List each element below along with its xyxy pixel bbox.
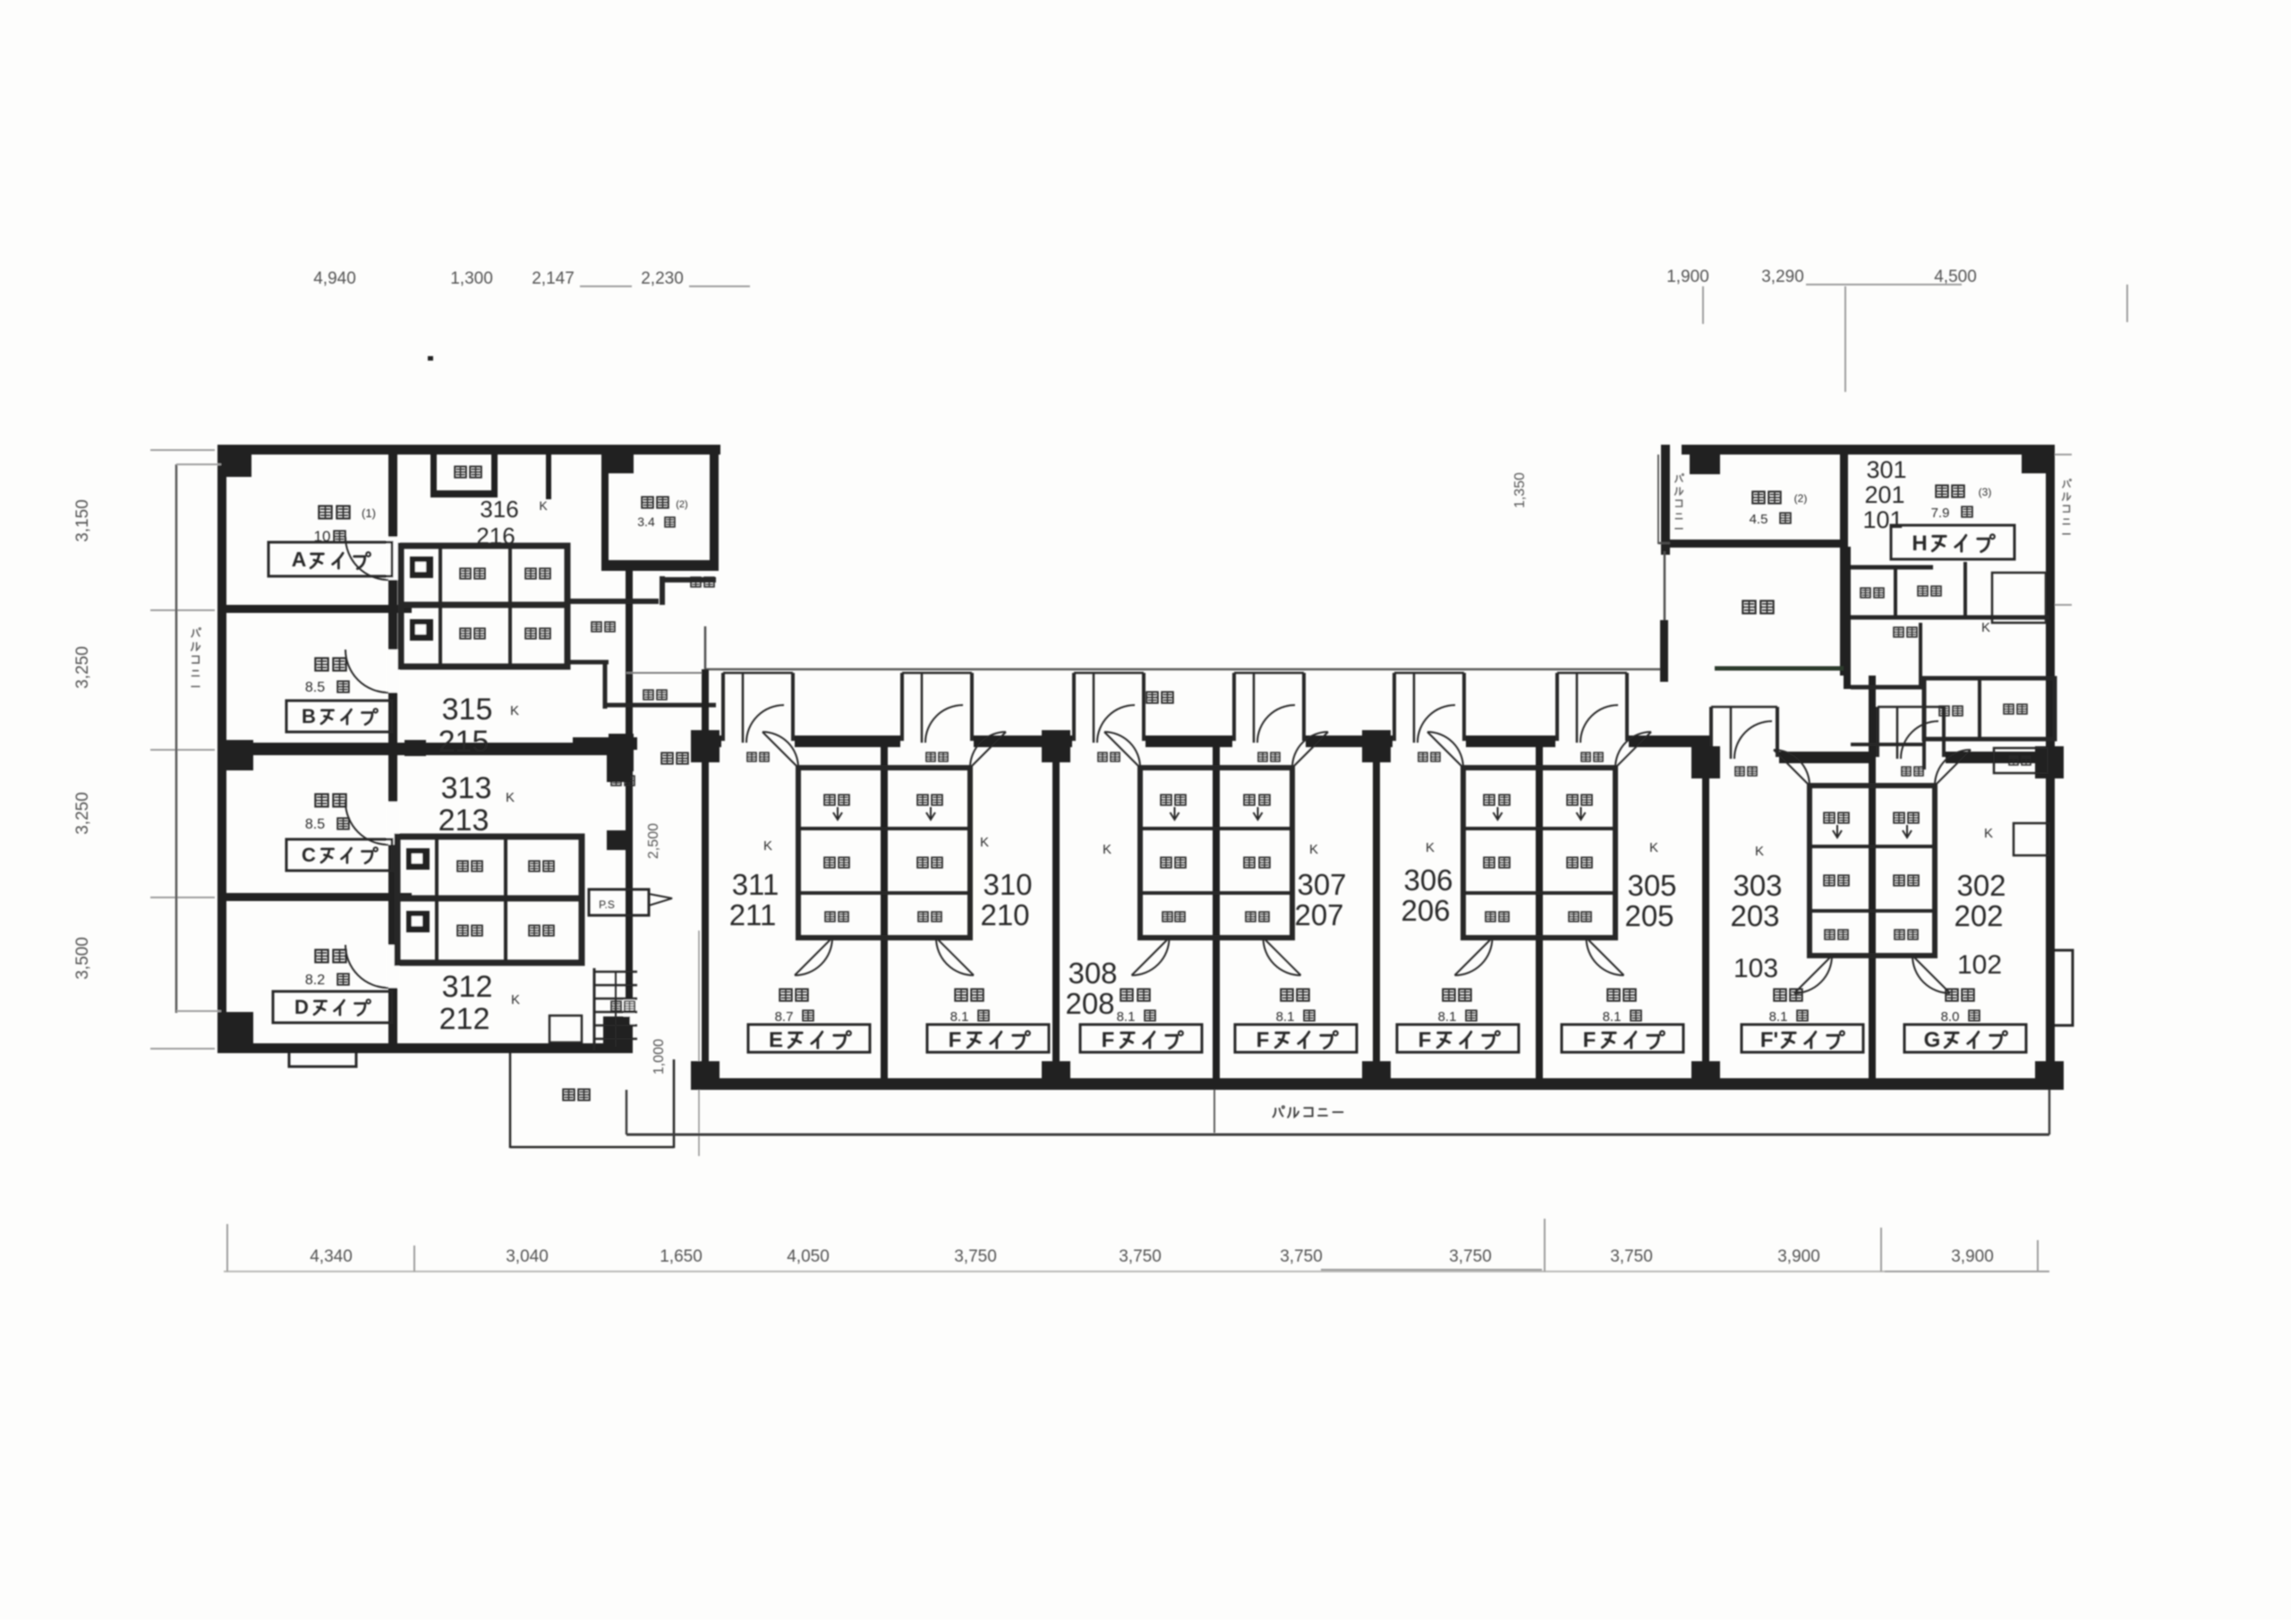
svg-text:F: F [949, 1028, 962, 1052]
svg-text:301: 301 [1866, 456, 1906, 483]
svg-text:D: D [294, 996, 309, 1018]
svg-text:F: F [1102, 1028, 1115, 1052]
svg-text:102: 102 [1957, 950, 2002, 980]
svg-text:8.5: 8.5 [305, 680, 325, 695]
svg-text:K: K [1755, 844, 1764, 859]
svg-text:(1): (1) [362, 506, 376, 520]
svg-text:1,000: 1,000 [652, 1039, 667, 1075]
svg-text:215: 215 [439, 725, 490, 759]
svg-text:3,750: 3,750 [1449, 1247, 1492, 1266]
svg-text:(3): (3) [1979, 486, 1992, 498]
svg-text:3.4: 3.4 [637, 514, 655, 529]
svg-text:A: A [292, 548, 307, 571]
svg-text:K: K [1309, 842, 1318, 857]
svg-text:K: K [1426, 840, 1435, 855]
svg-text:3,250: 3,250 [73, 792, 92, 835]
svg-text:(2): (2) [1794, 492, 1808, 505]
svg-text:H: H [1912, 531, 1927, 556]
svg-text:F: F [1583, 1028, 1597, 1052]
svg-text:8.1: 8.1 [950, 1009, 969, 1025]
svg-text:7.9: 7.9 [1931, 506, 1950, 521]
svg-text:315: 315 [442, 693, 493, 727]
svg-text:4,340: 4,340 [310, 1247, 353, 1266]
svg-text:8.1: 8.1 [1769, 1009, 1788, 1025]
svg-text:G: G [1924, 1028, 1941, 1052]
svg-text:211: 211 [729, 898, 777, 931]
svg-text:E: E [769, 1028, 783, 1052]
svg-text:K: K [980, 835, 989, 850]
svg-text:202: 202 [1954, 899, 2003, 932]
svg-text:205: 205 [1624, 899, 1674, 932]
svg-text:3,150: 3,150 [73, 499, 92, 542]
svg-text:101: 101 [1862, 506, 1903, 533]
svg-text:3,750: 3,750 [1610, 1247, 1653, 1266]
svg-text:C: C [302, 844, 316, 866]
svg-text:103: 103 [1733, 954, 1778, 983]
svg-text:213: 213 [439, 803, 490, 838]
svg-text:1,350: 1,350 [1512, 472, 1528, 508]
svg-text:310: 310 [983, 868, 1032, 901]
svg-text:2,230: 2,230 [641, 269, 684, 288]
svg-text:208: 208 [1065, 987, 1114, 1020]
svg-text:8.1: 8.1 [1276, 1009, 1295, 1025]
svg-text:K: K [506, 790, 515, 805]
svg-text:F: F [1418, 1028, 1432, 1052]
svg-text:3,750: 3,750 [1119, 1247, 1162, 1266]
svg-text:8.0: 8.0 [1941, 1009, 1960, 1025]
svg-text:K: K [1103, 842, 1111, 857]
svg-text:(2): (2) [676, 499, 687, 510]
svg-text:207: 207 [1294, 898, 1343, 931]
svg-text:8.5: 8.5 [305, 817, 325, 832]
svg-text:201: 201 [1864, 481, 1904, 508]
svg-text:K: K [1649, 840, 1658, 855]
svg-text:210: 210 [980, 898, 1029, 931]
svg-text:1,650: 1,650 [660, 1247, 703, 1266]
svg-text:2,147: 2,147 [532, 269, 575, 288]
svg-text:308: 308 [1068, 957, 1117, 990]
svg-text:203: 203 [1730, 899, 1779, 932]
svg-text:1,900: 1,900 [1666, 268, 1709, 286]
svg-text:2,500: 2,500 [646, 823, 661, 859]
svg-text:3,900: 3,900 [1951, 1247, 1994, 1266]
svg-text:K: K [1984, 826, 1993, 841]
svg-text:312: 312 [442, 970, 493, 1004]
svg-text:302: 302 [1956, 869, 2006, 902]
svg-text:305: 305 [1627, 869, 1676, 902]
svg-text:B: B [302, 705, 316, 727]
svg-text:K: K [763, 838, 772, 854]
svg-text:4,940: 4,940 [313, 269, 356, 288]
svg-text:3,290: 3,290 [1761, 268, 1804, 286]
svg-text:3,900: 3,900 [1777, 1247, 1820, 1266]
svg-text:311: 311 [732, 868, 779, 901]
svg-text:8.1: 8.1 [1603, 1009, 1622, 1025]
svg-text:316: 316 [480, 496, 518, 523]
svg-text:P.S: P.S [599, 898, 615, 911]
svg-text:4,050: 4,050 [787, 1247, 830, 1266]
svg-text:F: F [1256, 1028, 1270, 1052]
svg-text:1,300: 1,300 [450, 269, 493, 288]
svg-text:F': F' [1760, 1028, 1778, 1052]
svg-text:3,250: 3,250 [73, 646, 92, 689]
svg-text:K: K [511, 992, 520, 1008]
svg-text:8.2: 8.2 [305, 973, 325, 988]
svg-text:303: 303 [1733, 869, 1782, 902]
svg-text:3,040: 3,040 [506, 1247, 549, 1266]
svg-text:3,750: 3,750 [1280, 1247, 1323, 1266]
svg-text:8.7: 8.7 [775, 1009, 794, 1025]
svg-text:313: 313 [441, 771, 492, 805]
svg-text:8.1: 8.1 [1117, 1009, 1136, 1025]
svg-text:212: 212 [439, 1002, 490, 1036]
svg-text:3,500: 3,500 [73, 937, 92, 980]
svg-text:4.5: 4.5 [1750, 512, 1768, 527]
svg-text:8.1: 8.1 [1438, 1009, 1457, 1025]
svg-text:206: 206 [1401, 894, 1450, 927]
svg-text:3,750: 3,750 [954, 1247, 997, 1266]
svg-text:4,500: 4,500 [1934, 268, 1977, 286]
svg-text:K: K [1981, 620, 1990, 635]
svg-text:306: 306 [1403, 863, 1452, 897]
svg-text:K: K [539, 498, 548, 513]
svg-text:K: K [510, 703, 519, 718]
svg-text:307: 307 [1297, 868, 1346, 901]
